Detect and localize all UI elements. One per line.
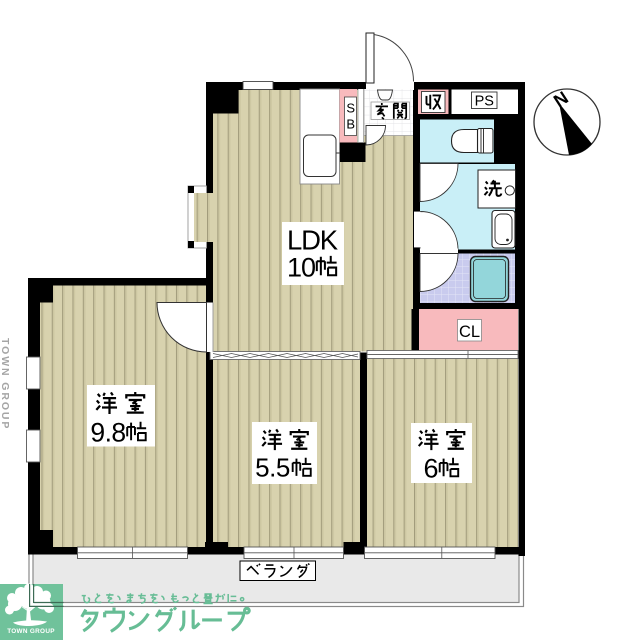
- svg-text:TOWN GROUP: TOWN GROUP: [0, 338, 11, 430]
- svg-text:TOWN GROUP: TOWN GROUP: [7, 628, 55, 635]
- svg-text:CL: CL: [459, 323, 480, 341]
- svg-text:S: S: [346, 101, 355, 116]
- svg-text:LDK: LDK: [287, 225, 339, 256]
- svg-text:9.8: 9.8: [90, 418, 125, 448]
- svg-text:PS: PS: [475, 94, 494, 110]
- svg-text:5.5: 5.5: [255, 453, 290, 483]
- svg-text:6: 6: [423, 454, 438, 484]
- svg-text:B: B: [346, 117, 355, 132]
- svg-text:10: 10: [287, 253, 315, 283]
